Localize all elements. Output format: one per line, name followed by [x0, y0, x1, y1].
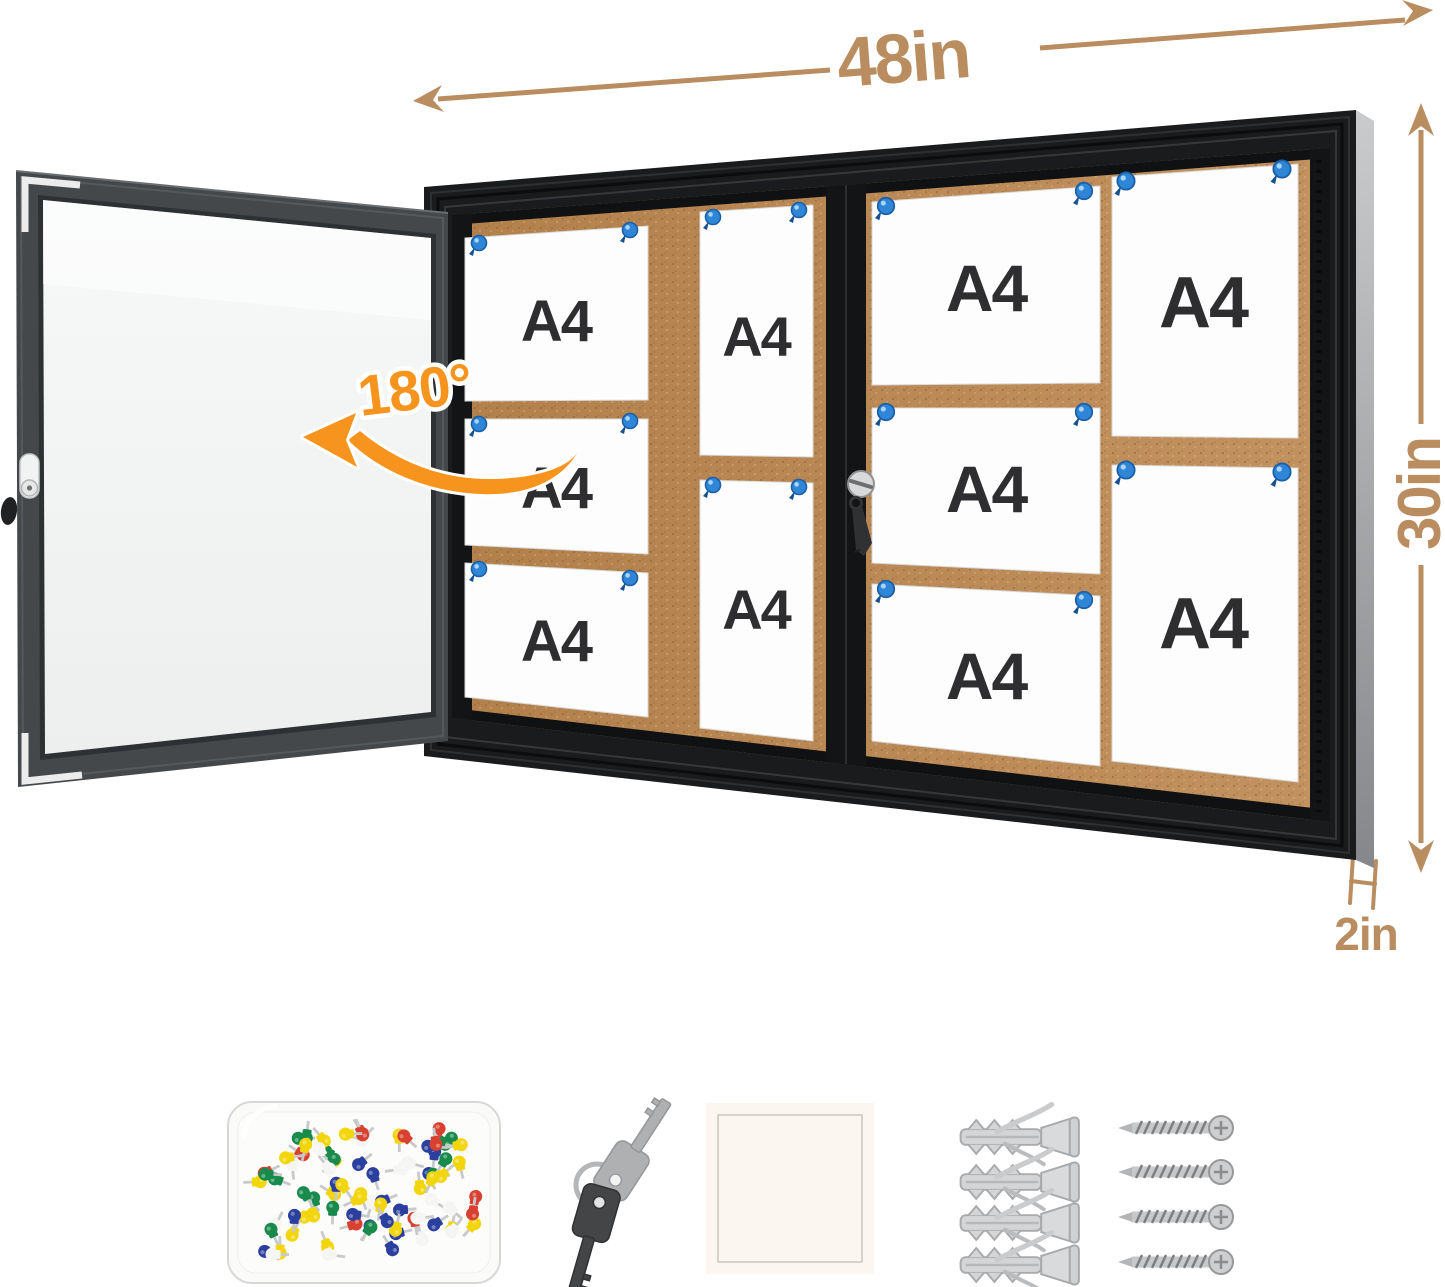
pushpin-box: [228, 1102, 500, 1283]
screw-icon: [1118, 1116, 1233, 1140]
wall-anchor-icon: [961, 1191, 1079, 1251]
screw-icon: [1118, 1250, 1233, 1274]
door-lock-icon: [20, 454, 39, 498]
wall-anchors: [961, 1105, 1079, 1287]
bulletin-board: A4 A4 A4 A4 A4 A4 A4 A4 A4 A4: [424, 110, 1374, 868]
dimension-arrow-down-icon: [1408, 840, 1434, 873]
open-door: [0, 171, 448, 787]
door-latch-knob: [0, 496, 19, 526]
paper-label: A4: [521, 289, 593, 354]
dimension-line: [438, 70, 830, 99]
dimension-line: [1040, 20, 1405, 48]
width-label: 48in: [834, 14, 972, 102]
depth-label: 2in: [1334, 908, 1397, 960]
screw-icon: [1118, 1160, 1233, 1184]
lock-icon: [848, 471, 874, 497]
wall-anchor-icon: [961, 1105, 1079, 1165]
paper-label: A4: [722, 578, 791, 641]
paper-label: A4: [521, 609, 593, 674]
dimension-arrow-right-icon: [1402, 0, 1433, 26]
key-icon: [555, 1182, 622, 1287]
paper-label: A4: [722, 305, 791, 368]
illustration-canvas: 48in 30in 2in: [0, 0, 1445, 1287]
paper-label: A4: [946, 251, 1029, 325]
product-illustration: 48in 30in 2in: [0, 0, 1445, 1287]
keys-set: [555, 1091, 682, 1287]
screw-icon: [1118, 1205, 1233, 1229]
paper-label: A4: [1159, 584, 1249, 664]
dimension-width-annotation: 48in: [413, 0, 1433, 112]
screws: [1118, 1116, 1233, 1274]
dimension-depth-annotation: 2in: [1334, 856, 1397, 960]
board-side-face: [1356, 110, 1374, 868]
paper-label: A4: [946, 452, 1029, 526]
paper-label: A4: [946, 639, 1029, 713]
wall-anchor-icon: [961, 1233, 1079, 1287]
dimension-height-annotation: 30in: [1386, 103, 1445, 873]
height-label: 30in: [1386, 438, 1445, 550]
paper-label: A4: [1159, 263, 1249, 343]
wall-anchor-icon: [961, 1150, 1079, 1210]
accessories: [228, 1091, 1233, 1287]
mounting-pad: [706, 1103, 874, 1274]
